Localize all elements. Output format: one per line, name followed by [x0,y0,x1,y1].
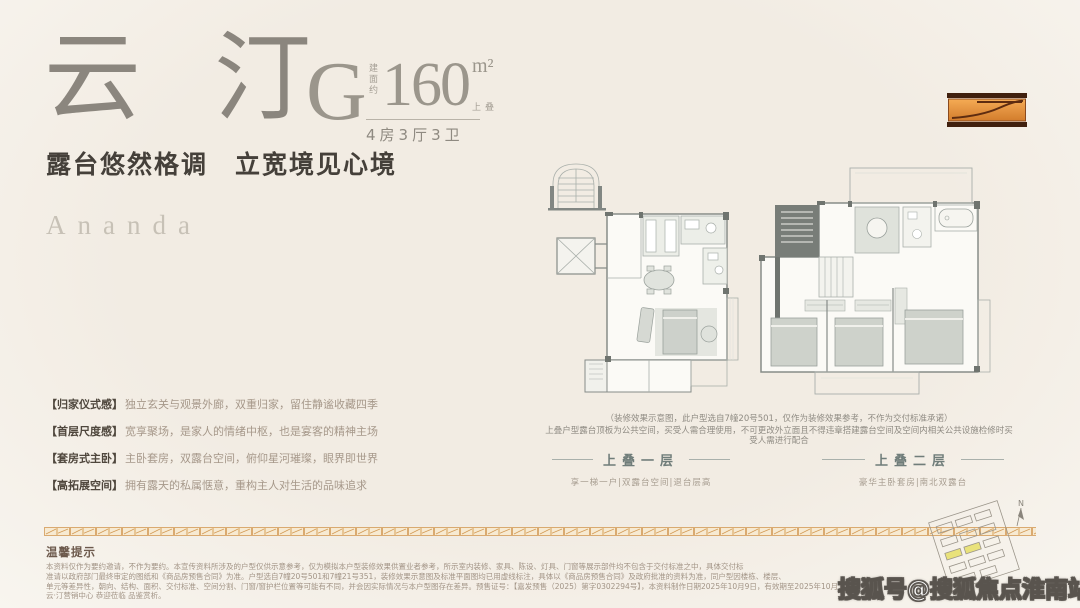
plan-note-line1: （装修效果示意图，此户型选自7幢20号501，仅作为装修效果参考，不作为交付标准… [545,414,1013,424]
bed [663,310,697,354]
side-balcony [727,298,738,360]
feature-item: 【归家仪式感】独立玄关与观景外廊，双重归家，留住静谧收藏四季 [46,399,378,410]
decorative-border-strip [44,527,1036,536]
dining-table [644,270,674,290]
svg-text:N: N [1018,499,1024,508]
floor-plan-level-1-figure [543,158,739,398]
feature-text: 独立玄关与观景外廊，双重归家，留住静谧收藏四季 [125,398,378,411]
label-rule-left [552,459,593,460]
area-group: 建面约 160 m² 上叠 [366,56,498,115]
unit-type-letter: G [306,50,367,134]
plan-caption-level1: 享一梯一户|双露台空间|退台层高 [552,476,730,488]
plan-label-level1: 上叠一层 [552,450,730,469]
feature-item: 【高拓展空间】拥有露天的私属惬意，重构主人对生活的品味追求 [46,480,378,491]
plan-label-text: 上叠二层 [875,450,951,469]
feature-head: 【套房式主卧】 [46,452,123,465]
label-rule-right [689,459,730,460]
area-prefix-label: 建面约 [366,63,379,96]
feature-item: 【首层尺度感】宽享聚场，是家人的情绪中枢，也是宴客的精神主场 [46,426,378,437]
sohu-watermark: 搜狐号@搜狐焦点淮南站 [838,570,1080,604]
stairwell-tower [553,164,599,208]
feature-text: 主卧套房，双露台空间，俯仰星河璀璨，眼界即世界 [125,452,378,465]
soaking-tub [867,218,887,238]
area-tag: 上叠 [472,100,498,113]
plan-label-text: 上叠一层 [603,450,679,469]
side-balcony [978,300,990,372]
label-rule-left [822,459,865,460]
area-value: 160 [382,56,469,115]
subtitle: 露台悠然格调 立宽境见心境 [46,145,397,181]
floor-plan-level-2-figure [755,160,995,398]
feature-head: 【首层尺度感】 [46,425,123,438]
developer-logo-icon [947,93,1027,127]
plan-label-level2: 上叠二层 [822,450,1004,469]
label-rule-right [961,459,1004,460]
plan-note-line2: 上叠户型露台顶板为公共空间，买受人需合理使用，不可更改外立面且不得违章搭建露台空… [545,426,1013,446]
feature-text: 拥有露天的私属惬意，重构主人对生活的品味追求 [125,479,367,492]
stairwell-core [775,205,819,257]
feature-text: 宽享聚场，是家人的情绪中枢，也是宴客的精神主场 [125,425,378,438]
area-divider-line [366,119,480,120]
area-side: m² 上叠 [472,56,498,113]
compass-north-icon: N [1017,499,1024,526]
feature-item: 【套房式主卧】主卧套房，双露台空间，俯仰星河璀璨，眼界即世界 [46,453,378,464]
brand-name: Ananda [46,210,202,241]
plan-notes: （装修效果示意图，此户型选自7幢20号501，仅作为装修效果参考，不作为交付标准… [545,414,1013,446]
lower-terrace [815,372,919,394]
bathtub [939,209,973,227]
feature-head: 【归家仪式感】 [46,398,123,411]
feature-list: 【归家仪式感】独立玄关与观景外廊，双重归家，留住静谧收藏四季 【首层尺度感】宽享… [46,399,378,507]
feature-head: 【高拓展空间】 [46,479,123,492]
warm-tips-title: 温馨提示 [46,544,96,560]
poster-page: 云汀 G 建面约 160 m² 上叠 4房3厅3卫 露台悠然格调 立宽境见心境 … [0,0,1080,608]
interior-stairs [819,257,853,297]
room-layout-label: 4房3厅3卫 [366,124,464,145]
plan-caption-level2: 豪华主卧套房|南北双露台 [822,476,1004,488]
area-unit: m² [472,56,498,76]
